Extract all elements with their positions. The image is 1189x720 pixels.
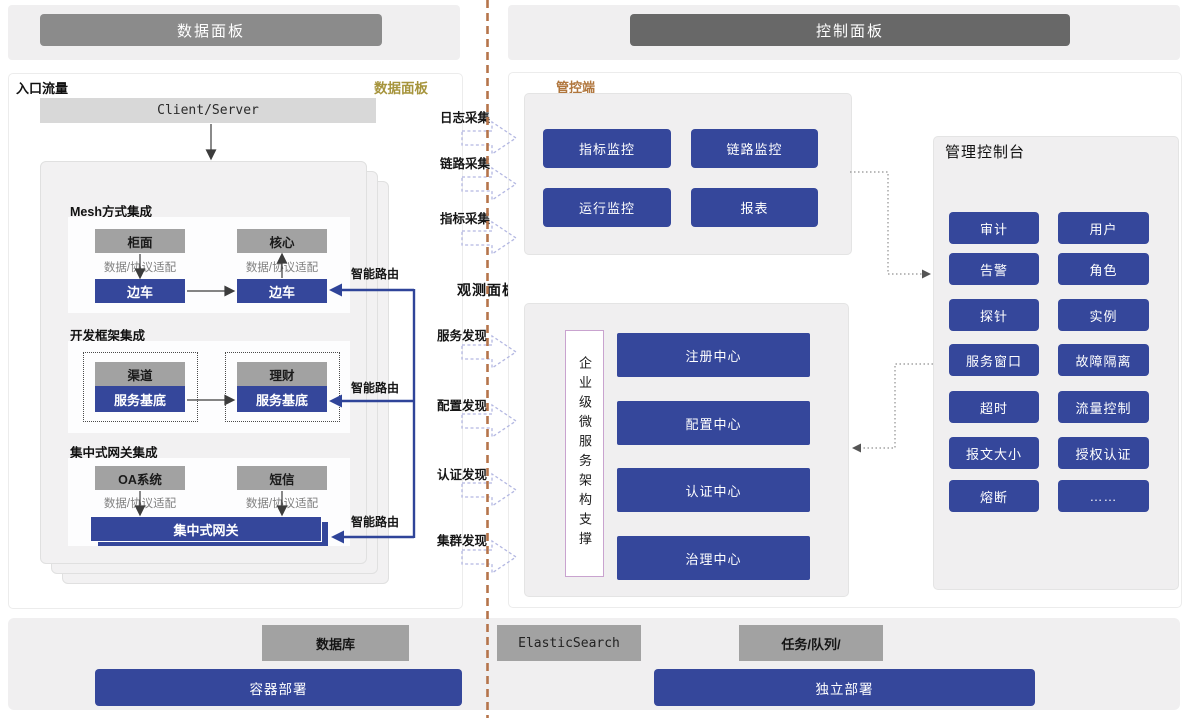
- console-button-label: 实例: [1089, 306, 1117, 325]
- monitor-panel: [524, 93, 852, 255]
- gateway-right-app-box: 短信: [237, 466, 327, 490]
- governance-center-button[interactable]: 治理中心: [617, 536, 810, 580]
- flow-label-metric-collect: 指标采集: [440, 208, 490, 227]
- config-center-button[interactable]: 配置中心: [617, 401, 810, 445]
- console-button-message-size[interactable]: 报文大小: [949, 437, 1039, 469]
- gateway-bar-label: 集中式网关: [173, 520, 238, 539]
- architecture-diagram: 数据面板 控制面板 入口流量 数据面板 Client/Server Mesh方式…: [0, 0, 1189, 720]
- console-button-label: 用户: [1089, 219, 1117, 238]
- elasticsearch-label: ElasticSearch: [518, 636, 620, 651]
- framework-right-base-box: 服务基底: [237, 386, 327, 412]
- console-button-label: 审计: [980, 219, 1008, 238]
- console-button-label: 熔断: [980, 487, 1008, 506]
- support-vertical-box: 企业级微服务架构支撑: [565, 330, 604, 577]
- auth-center-label: 认证中心: [685, 481, 741, 500]
- console-button-label: 角色: [1089, 260, 1117, 279]
- client-server-box: Client/Server: [40, 98, 376, 123]
- container-deploy-label: 容器部署: [250, 678, 308, 698]
- gateway-left-app-label: OA系统: [118, 469, 162, 488]
- runtime-monitor-label: 运行监控: [579, 198, 635, 217]
- container-deploy-box: 容器部署: [95, 669, 462, 706]
- console-button-label: ……: [1090, 489, 1118, 504]
- runtime-monitor-button[interactable]: 运行监控: [543, 188, 671, 227]
- console-button-label: 流量控制: [1075, 398, 1131, 417]
- console-button-alert[interactable]: 告警: [949, 253, 1039, 285]
- console-button-service-window[interactable]: 服务窗口: [949, 344, 1039, 376]
- database-label: 数据库: [316, 634, 355, 653]
- data-plane-corner-label: 数据面板: [374, 77, 428, 97]
- console-button-user[interactable]: 用户: [1058, 212, 1149, 244]
- smart-route-label-3: 智能路由: [351, 513, 405, 530]
- report-label: 报表: [740, 198, 768, 217]
- standalone-deploy-box: 独立部署: [654, 669, 1035, 706]
- console-button-circuit-break[interactable]: 熔断: [949, 480, 1039, 512]
- mesh-left-adapter-label: 数据/协议适配: [85, 259, 195, 275]
- report-button[interactable]: 报表: [691, 188, 818, 227]
- mesh-right-app-label: 核心: [269, 232, 294, 251]
- config-center-label: 配置中心: [685, 414, 741, 433]
- auth-center-button[interactable]: 认证中心: [617, 468, 810, 512]
- console-button-flow-control[interactable]: 流量控制: [1058, 391, 1149, 423]
- elasticsearch-box: ElasticSearch: [497, 625, 641, 661]
- gateway-right-app-label: 短信: [269, 469, 294, 488]
- mesh-left-app-label: 柜面: [127, 232, 152, 251]
- mesh-right-sidecar-box: 边车: [237, 279, 327, 303]
- trace-monitor-button[interactable]: 链路监控: [691, 129, 818, 168]
- console-button-more[interactable]: ……: [1058, 480, 1149, 512]
- mesh-right-adapter-label: 数据/协议适配: [227, 259, 337, 275]
- mesh-left-sidecar-label: 边车: [127, 282, 153, 301]
- standalone-deploy-label: 独立部署: [816, 678, 874, 698]
- smart-route-label-2: 智能路由: [351, 379, 405, 396]
- client-server-label: Client/Server: [157, 103, 259, 118]
- flow-label-config-discovery: 配置发现: [437, 395, 487, 414]
- registry-center-button[interactable]: 注册中心: [617, 333, 810, 377]
- console-button-label: 服务窗口: [966, 351, 1022, 370]
- console-button-label: 授权认证: [1075, 444, 1131, 463]
- flow-label-service-discovery: 服务发现: [437, 325, 487, 344]
- gateway-left-adapter-label: 数据/协议适配: [85, 495, 195, 511]
- task-queue-box: 任务/队列/: [739, 625, 883, 661]
- framework-left-base-box: 服务基底: [95, 386, 185, 412]
- control-plane-header: 控制面板: [630, 14, 1070, 46]
- gateway-left-app-box: OA系统: [95, 466, 185, 490]
- console-button-audit[interactable]: 审计: [949, 212, 1039, 244]
- console-button-fault-isolation[interactable]: 故障隔离: [1058, 344, 1149, 376]
- database-box: 数据库: [262, 625, 409, 661]
- flow-label-auth-discovery: 认证发现: [437, 464, 487, 483]
- metric-monitor-button[interactable]: 指标监控: [543, 129, 671, 168]
- console-button-label: 超时: [980, 398, 1008, 417]
- mesh-left-sidecar-box: 边车: [95, 279, 185, 303]
- framework-left-app-label: 渠道: [127, 365, 152, 384]
- mesh-left-app-box: 柜面: [95, 229, 185, 253]
- registry-center-label: 注册中心: [685, 346, 741, 365]
- gateway-right-adapter-label: 数据/协议适配: [227, 495, 337, 511]
- task-queue-label: 任务/队列/: [781, 634, 840, 653]
- flow-label-trace-collect: 链路采集: [440, 153, 490, 172]
- console-button-instance[interactable]: 实例: [1058, 299, 1149, 331]
- console-button-label: 告警: [980, 260, 1008, 279]
- smart-route-label-1: 智能路由: [351, 265, 405, 282]
- gateway-bar: 集中式网关: [90, 516, 322, 542]
- mesh-right-app-box: 核心: [237, 229, 327, 253]
- console-button-probe[interactable]: 探针: [949, 299, 1039, 331]
- entry-traffic-label: 入口流量: [16, 78, 68, 97]
- console-button-role[interactable]: 角色: [1058, 253, 1149, 285]
- management-console-title: 管理控制台: [945, 141, 1025, 162]
- framework-left-base-label: 服务基底: [114, 390, 166, 409]
- framework-left-app-box: 渠道: [95, 362, 185, 386]
- governance-center-label: 治理中心: [685, 549, 741, 568]
- console-button-label: 探针: [980, 306, 1008, 325]
- framework-right-app-label: 理财: [269, 365, 294, 384]
- framework-right-base-label: 服务基底: [256, 390, 308, 409]
- console-button-label: 故障隔离: [1075, 351, 1131, 370]
- data-plane-header-label: 数据面板: [177, 20, 245, 41]
- support-vertical-label: 企业级微服务架构支撑: [578, 356, 591, 551]
- metric-monitor-label: 指标监控: [579, 139, 635, 158]
- console-button-timeout[interactable]: 超时: [949, 391, 1039, 423]
- data-plane-header: 数据面板: [40, 14, 382, 46]
- flow-label-log-collect: 日志采集: [440, 107, 490, 126]
- mesh-right-sidecar-label: 边车: [269, 282, 295, 301]
- console-button-authz[interactable]: 授权认证: [1058, 437, 1149, 469]
- console-button-label: 报文大小: [966, 444, 1022, 463]
- trace-monitor-label: 链路监控: [726, 139, 782, 158]
- flow-label-cluster-discovery: 集群发现: [437, 530, 487, 549]
- framework-right-app-box: 理财: [237, 362, 327, 386]
- control-plane-header-label: 控制面板: [816, 20, 884, 41]
